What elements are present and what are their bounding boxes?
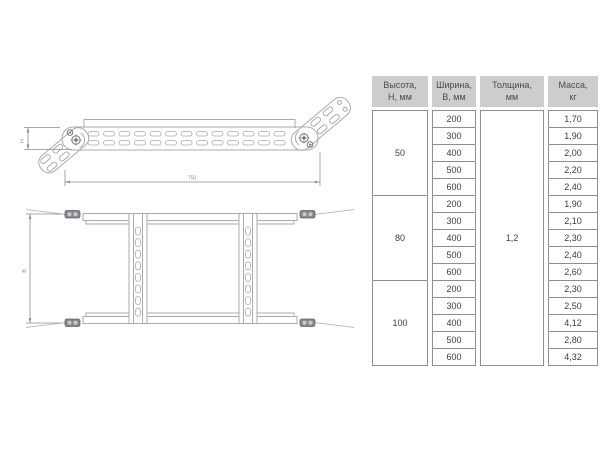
table-cell-mass: 2,00 [548,144,598,162]
table-cell-mass: 4,12 [548,314,598,332]
rail-top-flange [86,221,294,225]
table-cell-width: 300 [432,212,476,230]
table-cell-width: 300 [432,127,476,145]
dim-height-label: H [20,139,26,143]
table-cell-mass: 2,30 [548,280,598,298]
column-height: 5080100 [372,110,428,366]
table-cell-width: 400 [432,314,476,332]
table-header-cell: Высота, Н, мм [372,76,428,107]
table-cell-thickness: 1,2 [480,110,544,366]
dim-length-label: 750 [188,176,197,182]
table-cell-mass: 2,20 [548,161,598,179]
table-header-cell: Масса, кг [548,76,598,107]
corner-connector-bottom-right [300,319,354,328]
table-cell-width: 300 [432,297,476,315]
table-cell-width: 600 [432,348,476,366]
rail-perforations [88,132,285,146]
table-cell-width: 200 [432,195,476,213]
table-cell-height: 50 [372,110,428,196]
main-rail [62,127,318,150]
table-cell-width: 200 [432,280,476,298]
plan-view-drawing [83,214,297,324]
angled-plate-right [288,94,354,154]
table-cell-mass: 2,40 [548,246,598,264]
table-cell-mass: 2,30 [548,229,598,247]
table-cell-mass: 2,50 [548,297,598,315]
spec-table: Высота, Н, ммШирина, В, ммТолщина, ммМас… [372,76,598,366]
rail-top [83,214,297,221]
page: H 750 [0,0,600,450]
rung-left [129,214,147,324]
table-cell-width: 500 [432,161,476,179]
dimension-width: B [22,214,62,323]
table-header-row: Высота, Н, ммШирина, В, ммТолщина, ммМас… [372,76,598,107]
column-width: 2003004005006002003004005006002003004005… [432,110,476,366]
table-cell-width: 500 [432,331,476,349]
table-cell-height: 80 [372,195,428,281]
hinge-left [67,130,84,148]
table-cell-mass: 1,90 [548,195,598,213]
table-cell-mass: 4,32 [548,348,598,366]
table-cell-width: 200 [432,110,476,128]
table-cell-width: 600 [432,263,476,281]
side-view-drawing [62,120,318,151]
table-header-cell: Ширина, В, мм [432,76,476,107]
table-body: 5080100200300400500600200300400500600200… [372,110,598,366]
table-cell-mass: 2,80 [548,331,598,349]
table-cell-width: 500 [432,246,476,264]
table-cell-width: 400 [432,144,476,162]
table-cell-width: 400 [432,229,476,247]
table-cell-mass: 1,70 [548,110,598,128]
table-cell-height: 100 [372,280,428,366]
hinge-right [295,131,312,147]
dim-width-label: B [22,269,28,273]
table-cell-mass: 2,40 [548,178,598,196]
rail-bottom [83,317,297,324]
table-cell-mass: 1,90 [548,127,598,145]
table-cell-mass: 2,10 [548,212,598,230]
column-thickness: 1,2 [480,110,544,366]
table-cell-mass: 2,60 [548,263,598,281]
corner-connector-top-right [300,210,354,219]
dimension-length: 750 [65,152,320,186]
rail-bottom-flange [86,313,294,317]
rung-right [239,214,257,324]
table-header-cell: Толщина, мм [480,76,544,107]
table-cell-width: 600 [432,178,476,196]
column-mass: 1,701,902,002,202,401,902,102,302,402,60… [548,110,598,366]
